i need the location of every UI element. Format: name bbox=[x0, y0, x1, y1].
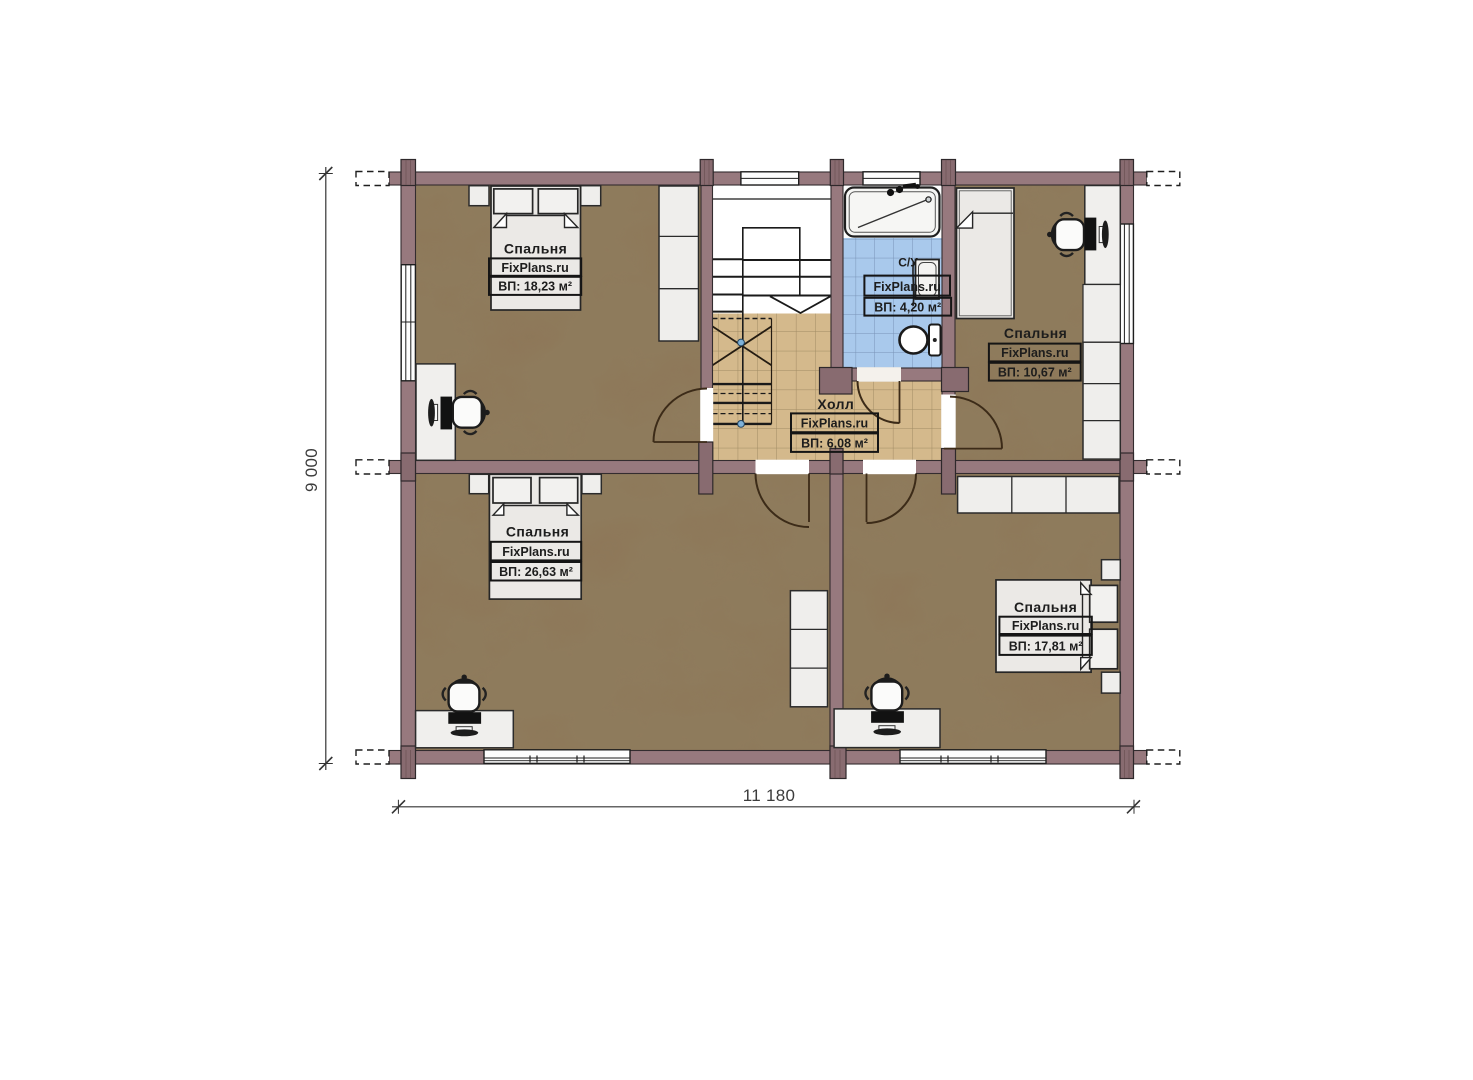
svg-text:Спальня: Спальня bbox=[1004, 325, 1067, 341]
svg-text:Холл: Холл bbox=[817, 396, 854, 412]
svg-text:FixPlans.ru: FixPlans.ru bbox=[1012, 619, 1079, 633]
svg-text:FixPlans.ru: FixPlans.ru bbox=[874, 280, 941, 294]
svg-text:ВП: 18,23 м²: ВП: 18,23 м² bbox=[498, 280, 572, 294]
svg-text:ВП: 26,63 м²: ВП: 26,63 м² bbox=[499, 565, 573, 579]
svg-text:Спальня: Спальня bbox=[506, 524, 569, 540]
svg-text:ВП: 17,81 м²: ВП: 17,81 м² bbox=[1009, 639, 1083, 653]
svg-text:С/У: С/У bbox=[898, 256, 918, 270]
svg-text:FixPlans.ru: FixPlans.ru bbox=[801, 417, 868, 431]
svg-text:ВП: 6,08 м²: ВП: 6,08 м² bbox=[801, 437, 868, 451]
svg-text:ВП: 4,20 м²: ВП: 4,20 м² bbox=[874, 300, 941, 314]
svg-text:FixPlans.ru: FixPlans.ru bbox=[1001, 346, 1068, 360]
svg-text:Спальня: Спальня bbox=[504, 241, 567, 257]
svg-text:FixPlans.ru: FixPlans.ru bbox=[501, 261, 568, 275]
svg-text:11 180: 11 180 bbox=[743, 786, 796, 805]
svg-text:ВП: 10,67 м²: ВП: 10,67 м² bbox=[998, 365, 1072, 379]
svg-text:FixPlans.ru: FixPlans.ru bbox=[502, 545, 569, 559]
svg-text:Спальня: Спальня bbox=[1014, 599, 1077, 615]
svg-text:9 000: 9 000 bbox=[302, 448, 321, 492]
